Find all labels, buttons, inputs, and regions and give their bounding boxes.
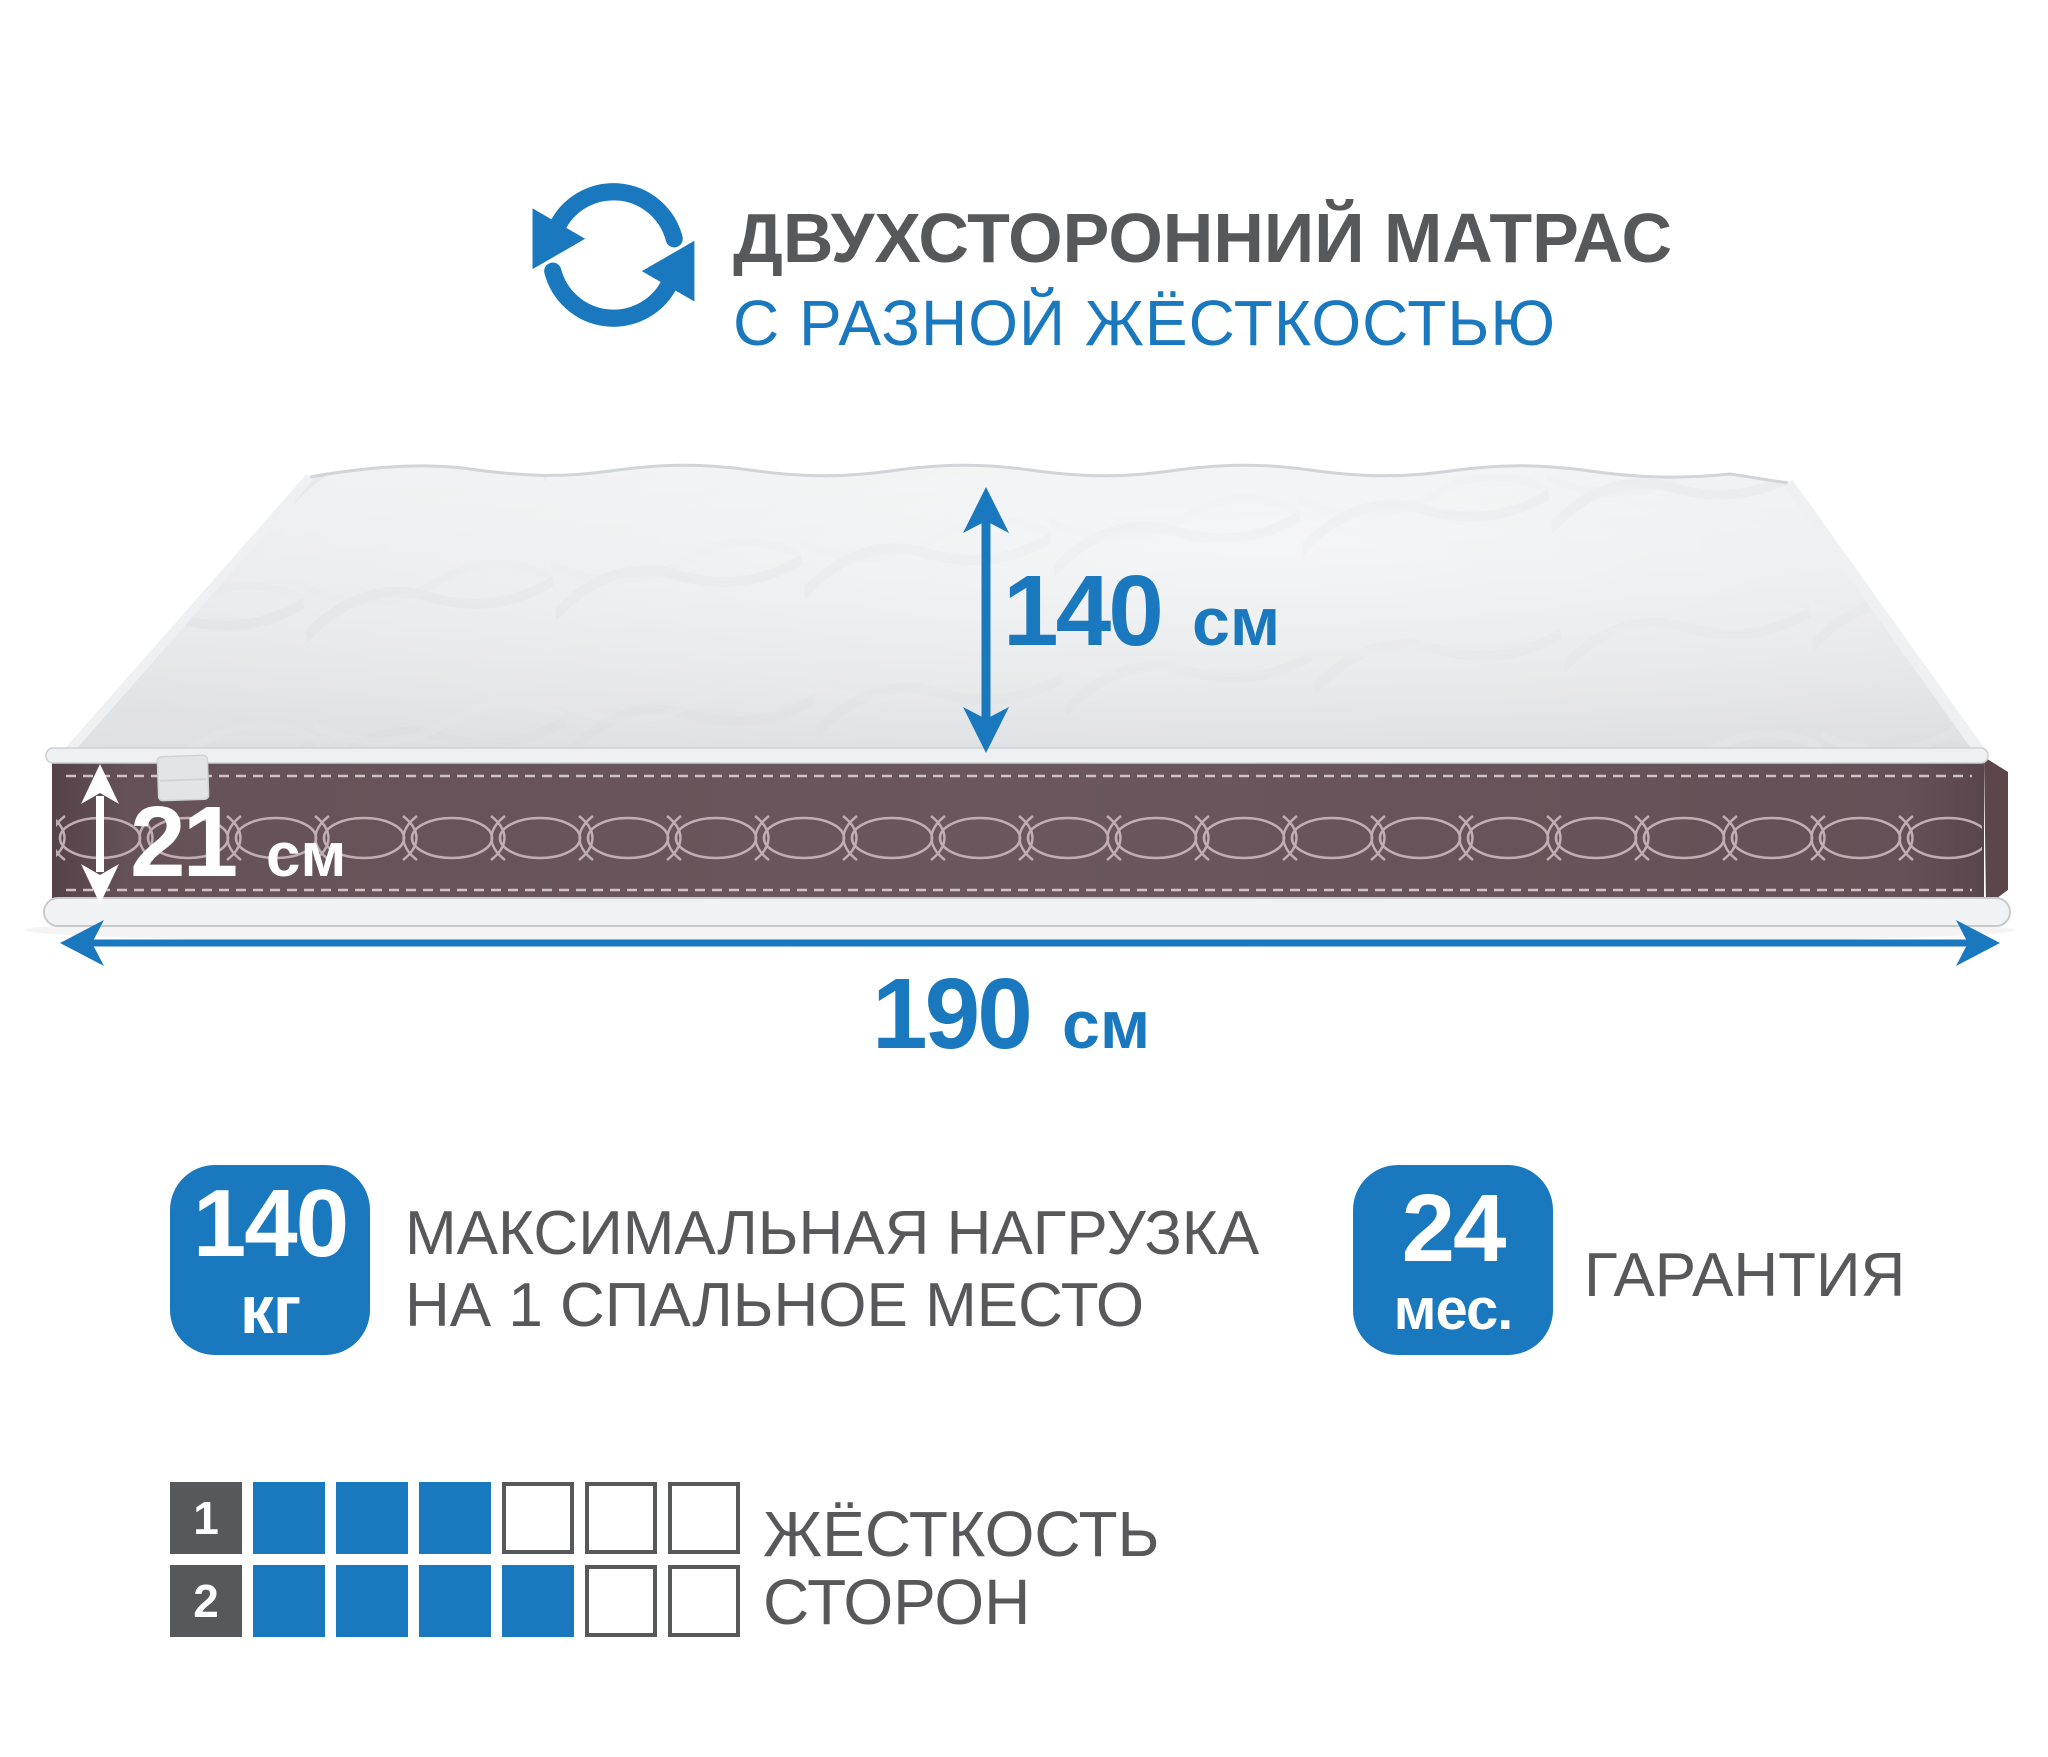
dimension-width-value: 140 [1003, 555, 1161, 667]
firmness-row-1-squares [253, 1482, 740, 1554]
firmness-label-line1: ЖЁСТКОСТЬ [763, 1497, 1160, 1571]
firmness-square-empty [502, 1482, 574, 1554]
dimension-height-unit: см [266, 821, 346, 890]
firmness-square-filled [253, 1482, 325, 1554]
firmness-square-empty [668, 1482, 740, 1554]
firmness-square-filled [336, 1482, 408, 1554]
firmness-square-empty [585, 1565, 657, 1637]
dimension-height-value: 21 [130, 786, 236, 898]
dimension-length-unit: см [1062, 987, 1150, 1063]
firmness-square-filled [419, 1482, 491, 1554]
firmness-square-filled [253, 1565, 325, 1637]
mattress-infographic: ДВУХСТОРОННИЙ МАТРАС С РАЗНОЙ ЖЁСТКОСТЬЮ [0, 0, 2048, 1757]
mattress-top-piping [46, 748, 1988, 763]
mattress-bottom-piping [44, 898, 2010, 926]
warranty-value: 24 [1402, 1181, 1505, 1277]
max-load-unit: кг [240, 1276, 300, 1344]
firmness-square-filled [502, 1565, 574, 1637]
firmness-square-empty [585, 1482, 657, 1554]
firmness-row-1: 1 [170, 1482, 740, 1554]
firmness-row-2-squares [253, 1565, 740, 1637]
warranty-badge: 24 мес. [1353, 1165, 1553, 1355]
warranty-label: ГАРАНТИЯ [1584, 1240, 1905, 1312]
firmness-square-empty [668, 1565, 740, 1637]
max-load-label-line2: НА 1 СПАЛЬНОЕ МЕСТО [405, 1270, 1259, 1342]
firmness-square-filled [336, 1565, 408, 1637]
max-load-value: 140 [193, 1176, 347, 1272]
firmness-square-filled [419, 1565, 491, 1637]
firmness-row-2-index: 2 [170, 1565, 242, 1637]
max-load-label-line1: МАКСИМАЛЬНАЯ НАГРУЗКА [405, 1198, 1259, 1270]
dimension-length-value: 190 [872, 958, 1030, 1070]
firmness-label-line2: СТОРОН [763, 1565, 1030, 1639]
warranty-unit: мес. [1394, 1281, 1513, 1339]
firmness-row-1-index: 1 [170, 1482, 242, 1554]
max-load-badge: 140 кг [170, 1165, 370, 1355]
firmness-row-2: 2 [170, 1565, 740, 1637]
dimension-width-unit: см [1192, 584, 1280, 660]
